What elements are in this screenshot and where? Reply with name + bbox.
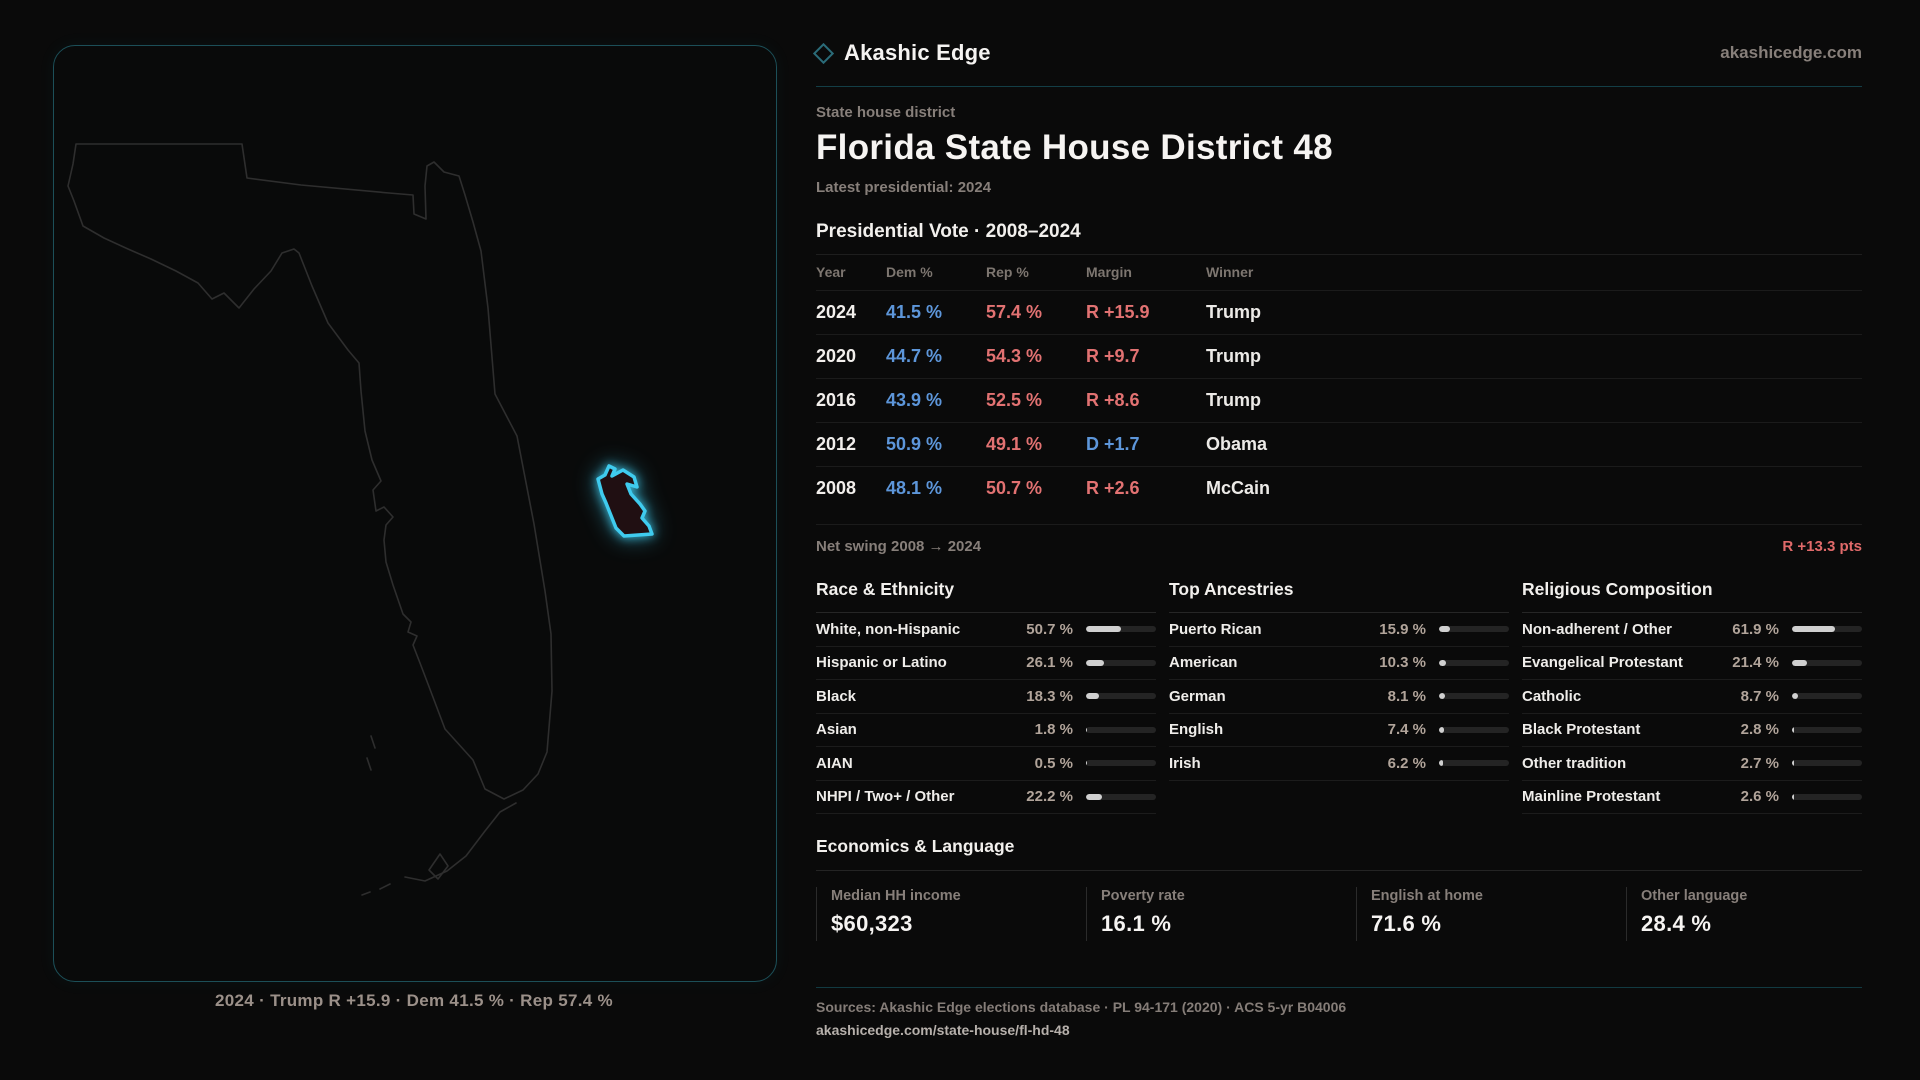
demographic-column-title: Race & Ethnicity	[816, 579, 1156, 613]
demographic-value: 10.3 %	[1352, 654, 1426, 671]
vote-dem-pct: 48.1 %	[886, 467, 986, 511]
vote-winner: McCain	[1206, 467, 1862, 511]
demographic-value: 1.8 %	[999, 721, 1073, 738]
demographic-bar-fill	[1439, 660, 1446, 666]
demographic-label: Mainline Protestant	[1522, 788, 1705, 805]
demographic-bar-track	[1792, 760, 1862, 766]
demographic-bar-fill	[1086, 626, 1121, 632]
demographic-label: American	[1169, 654, 1352, 671]
vote-margin: R +2.6	[1086, 467, 1206, 511]
vote-winner: Trump	[1206, 291, 1862, 335]
demographic-bar-fill	[1439, 727, 1444, 733]
vote-year: 2016	[816, 379, 886, 423]
vote-dem-pct: 44.7 %	[886, 335, 986, 379]
vote-margin: D +1.7	[1086, 423, 1206, 467]
vote-margin: R +8.6	[1086, 379, 1206, 423]
vote-dem-pct: 50.9 %	[886, 423, 986, 467]
demographic-bar-fill	[1792, 693, 1798, 699]
demographic-row: English7.4 %	[1169, 714, 1509, 748]
permalink[interactable]: akashicedge.com/state-house/fl-hd-48	[816, 1022, 1070, 1038]
florida-map	[54, 46, 776, 981]
latest-presidential: Latest presidential: 2024	[816, 179, 1862, 196]
demographic-row: NHPI / Two+ / Other22.2 %	[816, 781, 1156, 815]
vote-row: 201250.9 %49.1 %D +1.7Obama	[816, 423, 1862, 467]
vote-row: 200848.1 %50.7 %R +2.6McCain	[816, 467, 1862, 511]
demographic-bar-track	[1439, 660, 1509, 666]
district-48-shape[interactable]	[598, 466, 652, 536]
stat-cell: Median HH income$60,323	[816, 887, 1086, 941]
vote-column-header: Margin	[1086, 255, 1206, 291]
vote-rep-pct: 49.1 %	[986, 423, 1086, 467]
brand-domain-link[interactable]: akashicedge.com	[1720, 43, 1862, 63]
demographic-bar-fill	[1792, 626, 1835, 632]
district-map-panel	[53, 45, 777, 982]
demographic-bar-fill	[1792, 660, 1807, 666]
demographic-row: Evangelical Protestant21.4 %	[1522, 647, 1862, 681]
vote-year: 2020	[816, 335, 886, 379]
demographic-value: 50.7 %	[999, 621, 1073, 638]
demographic-value: 8.1 %	[1352, 688, 1426, 705]
demographic-row: Black Protestant2.8 %	[1522, 714, 1862, 748]
demographic-column: Top AncestriesPuerto Rican15.9 %American…	[1169, 579, 1509, 814]
demographic-row: Puerto Rican15.9 %	[1169, 613, 1509, 647]
demographic-value: 6.2 %	[1352, 755, 1426, 772]
vote-year: 2012	[816, 423, 886, 467]
stat-label: English at home	[1371, 888, 1626, 904]
stat-cell: Other language28.4 %	[1626, 887, 1862, 941]
stat-label: Poverty rate	[1101, 888, 1356, 904]
demographic-bar-fill	[1439, 693, 1445, 699]
demographic-bar-track	[1086, 727, 1156, 733]
demographic-bar-fill	[1086, 693, 1099, 699]
vote-column-header: Dem %	[886, 255, 986, 291]
stat-value: 71.6 %	[1371, 911, 1626, 937]
demographic-bar-track	[1086, 693, 1156, 699]
vote-row: 201643.9 %52.5 %R +8.6Trump	[816, 379, 1862, 423]
demographic-bar-track	[1086, 660, 1156, 666]
vote-rep-pct: 50.7 %	[986, 467, 1086, 511]
vote-rep-pct: 57.4 %	[986, 291, 1086, 335]
vote-year: 2008	[816, 467, 886, 511]
vote-margin: R +9.7	[1086, 335, 1206, 379]
demographic-bar-track	[1792, 727, 1862, 733]
demographic-bar-track	[1439, 693, 1509, 699]
demographic-row: Other tradition2.7 %	[1522, 747, 1862, 781]
demographic-bar-track	[1086, 626, 1156, 632]
demographic-row: AIAN0.5 %	[816, 747, 1156, 781]
demographic-label: NHPI / Two+ / Other	[816, 788, 999, 805]
brand-logo: Akashic Edge	[816, 40, 991, 66]
demographic-column-title: Top Ancestries	[1169, 579, 1509, 613]
demographic-value: 22.2 %	[999, 788, 1073, 805]
economics-stats: Median HH income$60,323Poverty rate16.1 …	[816, 887, 1862, 941]
sources-text: Sources: Akashic Edge elections database…	[816, 999, 1862, 1015]
stat-label: Median HH income	[831, 888, 1086, 904]
demographic-bar-track	[1792, 660, 1862, 666]
net-swing-label: Net swing 2008 → 2024	[816, 538, 981, 555]
demographic-row: Asian1.8 %	[816, 714, 1156, 748]
kicker-label: State house district	[816, 104, 1862, 121]
vote-row: 202441.5 %57.4 %R +15.9Trump	[816, 291, 1862, 335]
demographic-value: 26.1 %	[999, 654, 1073, 671]
demographic-bar-fill	[1792, 794, 1794, 800]
demographic-value: 15.9 %	[1352, 621, 1426, 638]
demographic-value: 2.6 %	[1705, 788, 1779, 805]
stat-label: Other language	[1641, 888, 1862, 904]
demographic-row: German8.1 %	[1169, 680, 1509, 714]
demographic-row: White, non-Hispanic50.7 %	[816, 613, 1156, 647]
brand-header: Akashic Edge akashicedge.com	[816, 40, 1862, 87]
stat-value: $60,323	[831, 911, 1086, 937]
stat-value: 16.1 %	[1101, 911, 1356, 937]
demographic-bar-track	[1792, 693, 1862, 699]
demographic-row: Mainline Protestant2.6 %	[1522, 781, 1862, 815]
demographic-value: 8.7 %	[1705, 688, 1779, 705]
demographic-row: Black18.3 %	[816, 680, 1156, 714]
demographic-label: Puerto Rican	[1169, 621, 1352, 638]
demographic-value: 21.4 %	[1705, 654, 1779, 671]
demographic-value: 61.9 %	[1705, 621, 1779, 638]
florida-outline	[68, 144, 552, 799]
demographic-label: English	[1169, 721, 1352, 738]
demographic-row: Non-adherent / Other61.9 %	[1522, 613, 1862, 647]
demographic-label: Evangelical Protestant	[1522, 654, 1705, 671]
vote-table-title: Presidential Vote · 2008–2024	[816, 221, 1862, 243]
demographic-bar-track	[1439, 727, 1509, 733]
brand-name: Akashic Edge	[844, 40, 991, 66]
net-swing-row: Net swing 2008 → 2024 R +13.3 pts	[816, 524, 1862, 555]
vote-table-header: YearDem %Rep %MarginWinner	[816, 255, 1862, 291]
demographic-row: Hispanic or Latino26.1 %	[816, 647, 1156, 681]
demographic-bar-fill	[1086, 727, 1087, 733]
demographic-label: AIAN	[816, 755, 999, 772]
vote-winner: Obama	[1206, 423, 1862, 467]
demographic-label: German	[1169, 688, 1352, 705]
demographics-grid: Race & EthnicityWhite, non-Hispanic50.7 …	[816, 579, 1862, 814]
demographic-row: American10.3 %	[1169, 647, 1509, 681]
demographic-label: Hispanic or Latino	[816, 654, 999, 671]
vote-rep-pct: 54.3 %	[986, 335, 1086, 379]
net-swing-value: R +13.3 pts	[1782, 538, 1862, 555]
vote-table-body: 202441.5 %57.4 %R +15.9Trump202044.7 %54…	[816, 291, 1862, 511]
economics-title: Economics & Language	[816, 836, 1862, 871]
footer: Sources: Akashic Edge elections database…	[816, 987, 1862, 1040]
diamond-icon	[813, 42, 834, 63]
vote-winner: Trump	[1206, 379, 1862, 423]
demographic-bar-track	[1439, 626, 1509, 632]
demographic-bar-track	[1086, 794, 1156, 800]
map-caption: 2024 · Trump R +15.9 · Dem 41.5 % · Rep …	[53, 991, 775, 1011]
demographic-column: Race & EthnicityWhite, non-Hispanic50.7 …	[816, 579, 1156, 814]
demographic-column: Religious CompositionNon-adherent / Othe…	[1522, 579, 1862, 814]
demographic-row: Irish6.2 %	[1169, 747, 1509, 781]
page-title: Florida State House District 48	[816, 128, 1862, 168]
demographic-value: 2.7 %	[1705, 755, 1779, 772]
demographic-value: 2.8 %	[1705, 721, 1779, 738]
demographic-bar-track	[1439, 760, 1509, 766]
demographic-bar-fill	[1439, 626, 1450, 632]
demographic-row: Catholic8.7 %	[1522, 680, 1862, 714]
demographic-label: Catholic	[1522, 688, 1705, 705]
demographic-bar-fill	[1792, 727, 1794, 733]
vote-column-header: Rep %	[986, 255, 1086, 291]
vote-dem-pct: 43.9 %	[886, 379, 986, 423]
demographic-bar-fill	[1439, 760, 1443, 766]
vote-year: 2024	[816, 291, 886, 335]
presidential-vote-table: YearDem %Rep %MarginWinner 202441.5 %57.…	[816, 254, 1862, 510]
demographic-label: White, non-Hispanic	[816, 621, 999, 638]
stat-cell: English at home71.6 %	[1356, 887, 1626, 941]
demographic-value: 7.4 %	[1352, 721, 1426, 738]
vote-column-header: Winner	[1206, 255, 1862, 291]
demographic-label: Black	[816, 688, 999, 705]
demographic-label: Asian	[816, 721, 999, 738]
vote-column-header: Year	[816, 255, 886, 291]
vote-dem-pct: 41.5 %	[886, 291, 986, 335]
vote-winner: Trump	[1206, 335, 1862, 379]
demographic-label: Irish	[1169, 755, 1352, 772]
demographic-label: Black Protestant	[1522, 721, 1705, 738]
stat-value: 28.4 %	[1641, 911, 1862, 937]
demographic-bar-track	[1792, 794, 1862, 800]
demographic-bar-fill	[1086, 794, 1102, 800]
stat-cell: Poverty rate16.1 %	[1086, 887, 1356, 941]
vote-rep-pct: 52.5 %	[986, 379, 1086, 423]
demographic-value: 18.3 %	[999, 688, 1073, 705]
demographic-label: Other tradition	[1522, 755, 1705, 772]
report-panel: Akashic Edge akashicedge.com State house…	[816, 40, 1862, 941]
florida-keys-outline	[362, 736, 516, 895]
demographic-bar-track	[1792, 626, 1862, 632]
demographic-column-title: Religious Composition	[1522, 579, 1862, 613]
vote-margin: R +15.9	[1086, 291, 1206, 335]
vote-row: 202044.7 %54.3 %R +9.7Trump	[816, 335, 1862, 379]
demographic-value: 0.5 %	[999, 755, 1073, 772]
demographic-bar-track	[1086, 760, 1156, 766]
demographic-label: Non-adherent / Other	[1522, 621, 1705, 638]
demographic-bar-fill	[1792, 760, 1794, 766]
demographic-bar-fill	[1086, 660, 1104, 666]
